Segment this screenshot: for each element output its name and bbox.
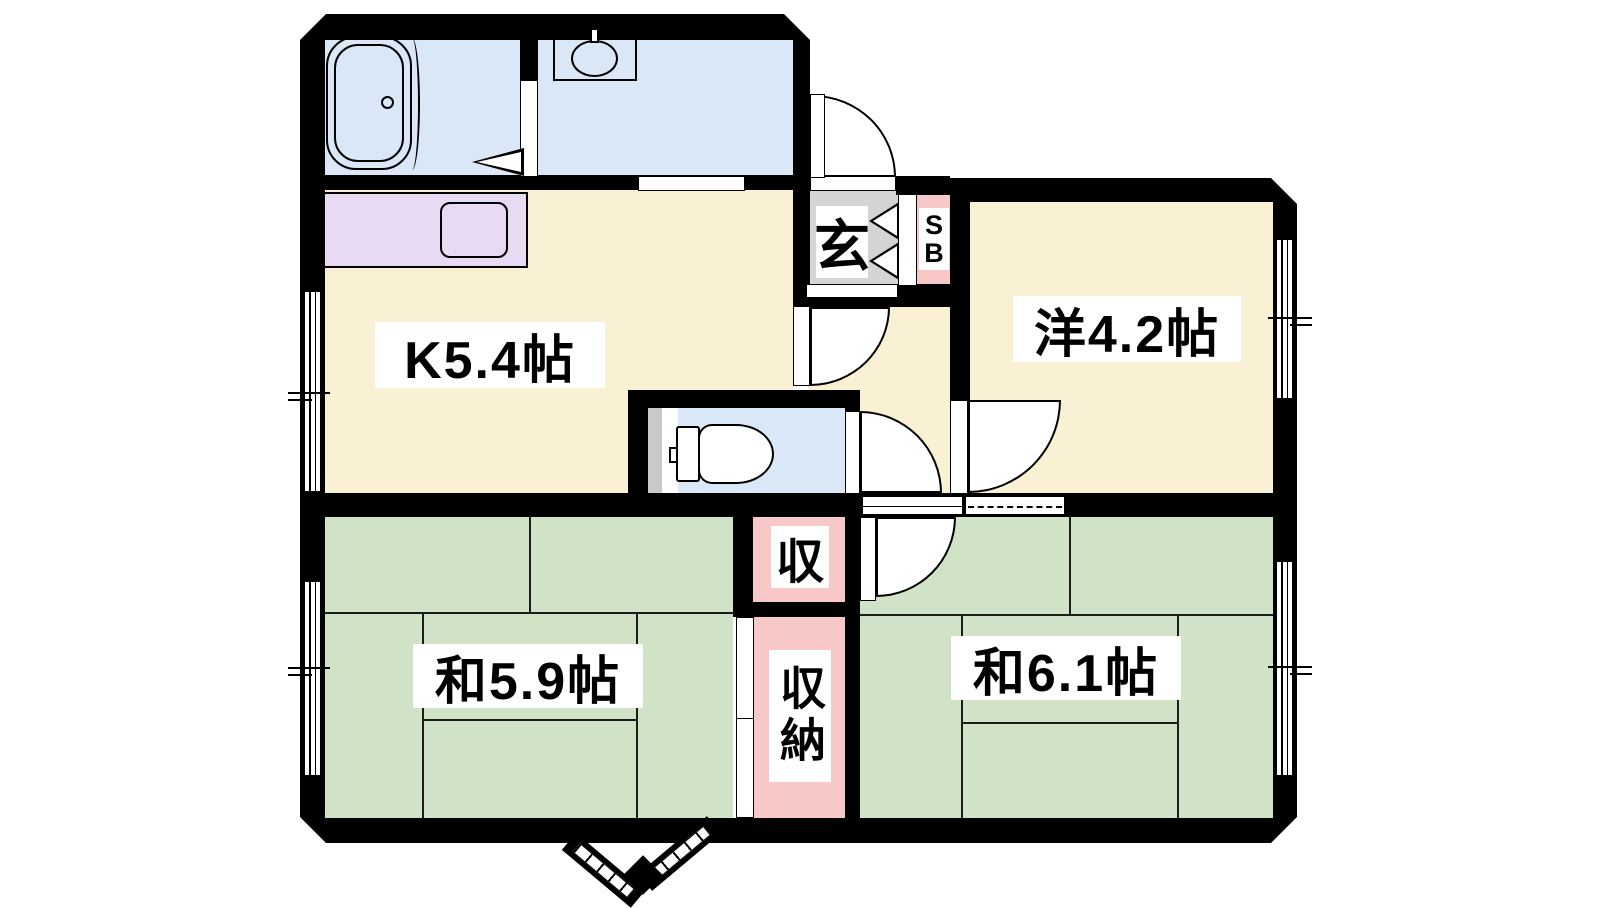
window-tick (1290, 673, 1312, 675)
washroom-sliding-door (638, 176, 745, 191)
entrance-label: 玄 (816, 206, 868, 278)
wall-hall-western (950, 202, 970, 400)
washbasin-tap-icon (590, 28, 599, 43)
floor-plan: K5.4帖 洋4.2帖 和5.9帖 和6.1帖 玄 SB 収 収納 (0, 0, 1600, 900)
tatami-line (860, 614, 1273, 616)
entrance-threshold (810, 176, 896, 191)
window-tick (288, 674, 312, 676)
window-tatami-left (303, 580, 322, 777)
tatami-line (1069, 517, 1071, 615)
bay-window-left-glass (572, 843, 635, 898)
window-tick (1268, 666, 1312, 668)
wall-bath-divider (520, 30, 538, 80)
front-door-arc (813, 95, 896, 177)
tatami-right-label: 和6.1帖 (951, 636, 1181, 700)
tatami-line (529, 517, 531, 613)
window-tick (1268, 317, 1312, 319)
washbasin-bowl-icon (571, 40, 618, 77)
window-western-right (1275, 238, 1294, 400)
window-tick (288, 399, 312, 401)
tatami-right-door-leaf (860, 517, 876, 601)
window-tick (288, 667, 330, 669)
front-door-leaf (810, 94, 825, 178)
kitchen-hall-door-leaf (793, 306, 810, 386)
wall-bottom (300, 818, 1297, 843)
wall-toilet-left (628, 390, 648, 497)
wall-over-sb (896, 176, 950, 195)
kitchen-label: K5.4帖 (375, 322, 605, 388)
window-tick (1290, 324, 1312, 326)
wall-toilet-right-stub (845, 390, 860, 412)
western-room-door-leaf (950, 400, 968, 494)
tatami-left-label: 和5.9帖 (413, 644, 643, 708)
wall-western-top (950, 178, 1297, 202)
closet-fusuma-door (736, 617, 754, 818)
toilet-tank-icon (676, 426, 700, 482)
window-tatami-right (1275, 560, 1294, 777)
bathtub-drain-icon (381, 96, 394, 109)
tatami-line (423, 719, 637, 721)
toilet-bowl-icon (698, 424, 774, 484)
closet-upper-label: 収 (771, 526, 829, 588)
window-tick (288, 392, 330, 394)
wall-washroom-right (793, 14, 810, 307)
toilet-flush-icon (669, 447, 678, 463)
bathtub-edge-curve (404, 38, 420, 170)
wall-kitchen-bottom (300, 493, 1273, 517)
western-tatami-partition (965, 496, 1065, 515)
closet-lower-label: 収納 (769, 650, 831, 782)
wall-closet-mid (733, 602, 860, 617)
shoe-box-label: SB (919, 208, 949, 270)
wall-toilet-top (628, 390, 860, 408)
toilet-sliding-panel (648, 408, 662, 493)
toilet-door-leaf (845, 411, 860, 494)
western-room-label: 洋4.2帖 (1013, 296, 1241, 362)
wall-closet-left (733, 493, 753, 602)
entrance-step (806, 284, 898, 298)
tatami-line (962, 722, 1178, 724)
kitchen-sink-icon (440, 202, 508, 258)
floor-plan-page: { "document": { "type": "apartment-floor… (0, 0, 1600, 900)
wall-closet-right (845, 513, 860, 818)
shoe-box-door-panel (898, 194, 917, 286)
tatami-right-sliding-door (862, 496, 963, 515)
